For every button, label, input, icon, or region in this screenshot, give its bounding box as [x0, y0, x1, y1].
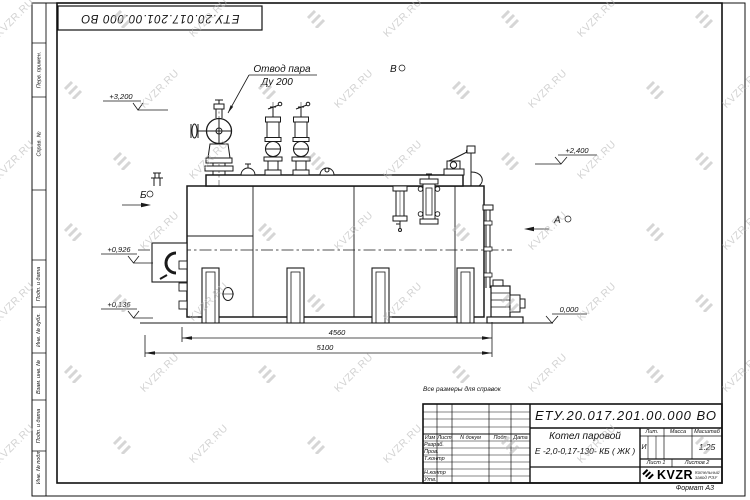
burner: [152, 243, 187, 309]
row-prov: Пров.: [424, 449, 439, 455]
format-label: Формат А3: [640, 485, 722, 492]
col-data: Дата: [511, 435, 530, 441]
margin-label: Инв. № подл.: [36, 450, 42, 484]
product-name-line1: Котел паровой: [530, 431, 640, 442]
margin-label: Подп. и дата: [36, 408, 42, 442]
col-izm: Изм: [423, 435, 437, 441]
elevation-0136: +0,136: [107, 300, 131, 309]
company-logo-subtext: Котельный завод РЭУ: [695, 470, 719, 480]
row-utv: Утв.: [424, 477, 437, 483]
margin-label: Взам. инв. №: [36, 359, 42, 393]
product-name-line2: Е -2,0-0,17-130- КБ ( ЖК ): [530, 446, 640, 456]
row-razrab: Разраб.: [424, 442, 444, 448]
margin-cell-invdubl: Инв. № дубл.: [32, 307, 46, 353]
boiler-linework: [138, 100, 553, 323]
margin-label: Инв. № дубл.: [36, 313, 42, 347]
elevation-0926: +0,926: [107, 245, 131, 254]
scale-label: Масштаб: [692, 429, 722, 435]
margin-cell-podp2: Подп. и дата: [32, 400, 46, 451]
col-ndokum: N докум: [452, 435, 489, 441]
doc-number-rotated: ЕТУ.20.017.201.00.000 ВО: [58, 6, 262, 30]
margin-cell-perv: Перв. примен.: [32, 43, 46, 97]
callout-steam-line1: Отвод пара: [253, 64, 311, 75]
row-tkontr: Т.контр: [424, 456, 445, 462]
view-label-b: Б: [140, 190, 147, 201]
lit-label: Лит.: [640, 429, 664, 435]
margin-cell-vzam: Взам. инв. №: [32, 353, 46, 400]
dim-5100: 5100: [317, 343, 335, 352]
margin-label: Перв. примен.: [36, 52, 42, 89]
view-label-a: А: [553, 215, 561, 226]
title-doc-number: ЕТУ.20.017.201.00.000 ВО: [530, 404, 722, 428]
safety-valves: [264, 102, 310, 175]
reference-note: Все размеры для справок: [423, 386, 501, 393]
margin-label: Справ. №: [36, 131, 42, 156]
scale-value: 1:25: [692, 436, 722, 459]
margin-cell-podp1: Подп. и дата: [32, 260, 46, 307]
elevation-0000: 0,000: [560, 305, 580, 314]
sheets-total: Листов 2: [672, 460, 722, 466]
margin-label: Подп. и дата: [36, 266, 42, 300]
col-list: Лист: [437, 435, 452, 441]
mass-label: Масса: [664, 429, 692, 435]
callout-steam-line2: Ду 200: [260, 77, 293, 88]
company-logo-sub2: завод РЭУ: [695, 475, 719, 480]
margin-cell-sprav: Справ. №: [32, 97, 46, 190]
margin-cell-invpodl: Инв. № подл.: [32, 451, 46, 483]
company-logo: KVZR Котельный завод РЭУ: [642, 467, 720, 483]
steam-valve: [191, 100, 233, 175]
dim-4560: 4560: [329, 328, 347, 337]
elevation-3200: +3,200: [109, 92, 133, 101]
col-podp: Подп: [489, 435, 511, 441]
company-logo-icon: [642, 466, 655, 484]
row-nkontr: Н.контр: [424, 470, 446, 476]
feed-pump: [483, 205, 525, 323]
company-logo-text: KVZR: [657, 468, 693, 482]
view-label-v: В: [390, 64, 397, 75]
lit-value: И: [640, 436, 648, 459]
elevation-2400: +2,400: [565, 146, 589, 155]
drawing-sheet: Отвод пара Ду 200 Б А В +3,200 +2,400 +0…: [0, 0, 750, 500]
doc-number-rotated-text: ЕТУ.20.017.201.00.000 ВО: [80, 12, 239, 24]
